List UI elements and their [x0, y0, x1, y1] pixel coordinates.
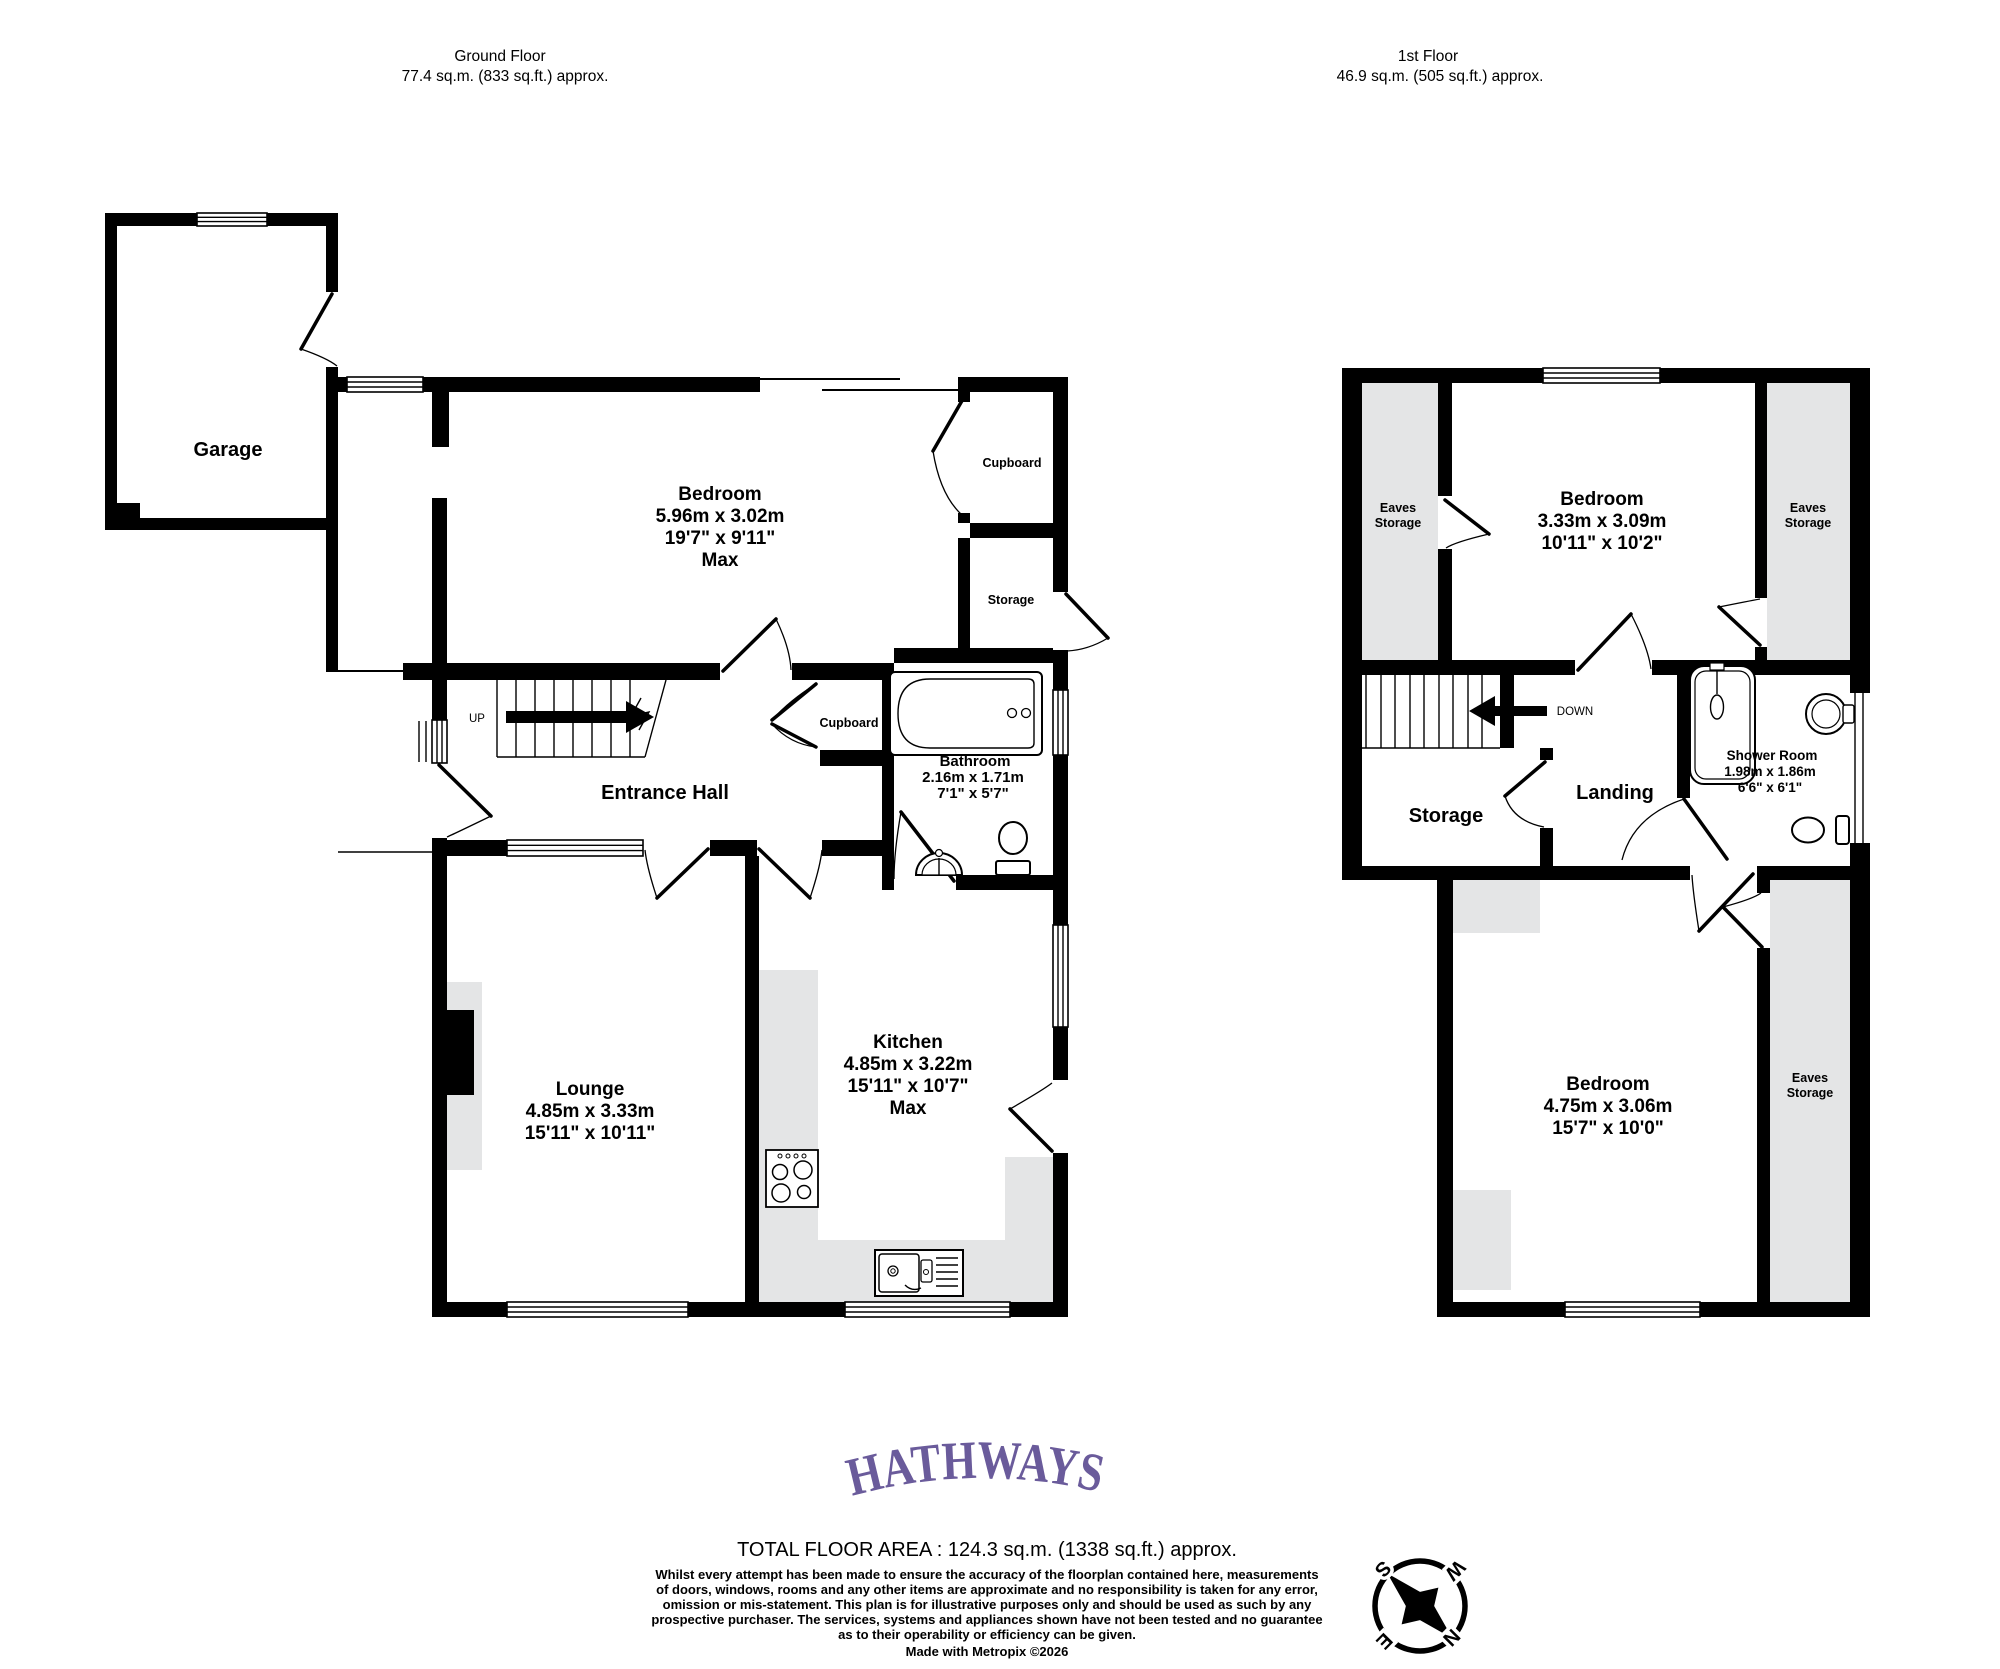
ground-floor-title: Ground Floor [454, 48, 545, 65]
eaves-top-right-line1: Eaves [1790, 501, 1826, 515]
toilet-fixture [996, 822, 1030, 875]
shower-room-dim-m: 1.98m x 1.86m [1724, 764, 1816, 779]
kitchen-side-window [1053, 925, 1068, 1027]
ff-bedroom-bottom-dim-ft: 15'7" x 10'0" [1552, 1118, 1664, 1139]
garage-window [197, 213, 267, 226]
eaves-left-line1: Eaves [1380, 501, 1416, 515]
shower-room-name: Shower Room [1727, 748, 1818, 763]
gf-bedroom-dim-ft: 19'7" x 9'11" [665, 528, 776, 549]
hall-lounge-window [507, 840, 643, 856]
kitchen-window [845, 1302, 1010, 1317]
bathroom-window [1053, 690, 1068, 755]
ff-stairs: DOWN [1362, 675, 1593, 748]
kitchen-name: Kitchen [873, 1032, 943, 1053]
disclaimer-line-3: omission or mis-statement. This plan is … [663, 1597, 1312, 1612]
ground-floor-plan: UP [105, 213, 1108, 1317]
ff-bedroom-bottom-dim-m: 4.75m x 3.06m [1544, 1096, 1673, 1117]
eaves-bottom-right-line2: Storage [1787, 1086, 1834, 1100]
total-floor-area: TOTAL FLOOR AREA : 124.3 sq.m. (1338 sq.… [737, 1539, 1237, 1561]
compass-west: W [1440, 1555, 1469, 1584]
lounge-dim-m: 4.85m x 3.33m [526, 1101, 655, 1122]
ff-bedroom-bottom-name: Bedroom [1566, 1074, 1649, 1095]
lounge-name: Lounge [556, 1079, 625, 1100]
ff-storage-door [1505, 762, 1545, 827]
shower-toilet-fixture [1792, 816, 1849, 844]
shower-sink-fixture [1806, 694, 1854, 734]
gf-labels: Garage Bedroom 5.96m x 3.02m 19'7" x 9'1… [194, 439, 1042, 1144]
first-floor-title: 1st Floor [1398, 48, 1458, 65]
gf-bedroom-window [347, 377, 423, 392]
gf-bedroom-max: Max [702, 550, 739, 571]
bathroom-sink-fixture [916, 850, 962, 876]
floorplan-page: Ground Floor 77.4 sq.m. (833 sq.ft.) app… [0, 0, 2000, 1669]
lounge-door [645, 849, 708, 898]
garage-side-door [301, 294, 337, 366]
gf-bedroom-dim-m: 5.96m x 3.02m [656, 506, 785, 527]
landing-label: Landing [1576, 782, 1654, 804]
compass-east: E [1371, 1628, 1396, 1653]
lounge-window [507, 1302, 688, 1317]
kitchen-door [759, 849, 822, 898]
right-storage-label: Storage [988, 593, 1035, 607]
gf-bedroom-door [723, 619, 791, 671]
ground-floor-area: 77.4 sq.m. (833 sq.ft.) approx. [402, 68, 609, 85]
first-floor-plan: DOWN Eaves Storage [1342, 368, 1870, 1317]
gf-stairs: UP [469, 680, 666, 757]
gf-bedroom-name: Bedroom [678, 484, 761, 505]
first-floor-area: 46.9 sq.m. (505 sq.ft.) approx. [1337, 68, 1544, 85]
ff-bedroom-top-door [1578, 614, 1651, 670]
up-label: UP [469, 713, 485, 725]
kitchen-dim-m: 4.85m x 3.22m [844, 1054, 973, 1075]
bathroom-name: Bathroom [940, 753, 1011, 770]
kitchen-sink-fixture [875, 1250, 963, 1296]
shower-room-door [1622, 799, 1727, 860]
front-door [439, 765, 491, 837]
gf-walls [105, 213, 1068, 1317]
bathtub-fixture [890, 672, 1042, 755]
top-cupboard-door [933, 399, 963, 515]
floorplan-canvas: Ground Floor 77.4 sq.m. (833 sq.ft.) app… [0, 0, 2000, 1669]
hob-fixture [766, 1150, 818, 1207]
kitchen-dim-ft: 15'11" x 10'7" [847, 1076, 968, 1097]
storage-external-door [1066, 594, 1108, 651]
kitchen-back-door [1010, 1083, 1052, 1151]
top-cupboard-label: Cupboard [982, 456, 1041, 470]
ff-bedroom-top-dim-ft: 10'11" x 10'2" [1541, 533, 1662, 554]
disclaimer-line-2: of doors, windows, rooms and any other i… [656, 1582, 1318, 1597]
ff-bedroom-top-name: Bedroom [1560, 489, 1643, 510]
entrance-hall-label: Entrance Hall [601, 782, 729, 804]
eaves-top-right-door [1719, 599, 1760, 645]
lounge-dim-ft: 15'11" x 10'11" [525, 1123, 656, 1144]
ff-bedroom-bottom-window [1565, 1302, 1700, 1317]
bathroom-dim-m: 2.16m x 1.71m [922, 769, 1024, 786]
up-arrow-icon [506, 701, 654, 733]
shower-room-dim-ft: 6'6" x 6'1" [1738, 780, 1802, 795]
garage-label: Garage [194, 439, 263, 461]
porch-window [419, 720, 447, 763]
ff-bedroom-top-dim-m: 3.33m x 3.09m [1538, 511, 1667, 532]
hall-cupboard-label: Cupboard [819, 716, 878, 730]
disclaimer: Whilst every attempt has been made to en… [651, 1567, 1322, 1659]
ff-bedroom-bottom-door [1692, 874, 1753, 931]
floor-headers: Ground Floor 77.4 sq.m. (833 sq.ft.) app… [402, 48, 1544, 85]
eaves-left-line2: Storage [1375, 516, 1422, 530]
footer: HATHWAYS TOTAL FLOOR AREA : 124.3 sq.m. … [651, 1430, 1501, 1669]
eaves-bottom-right-line1: Eaves [1792, 1071, 1828, 1085]
eaves-top-right-line2: Storage [1785, 516, 1832, 530]
hall-cupboard-doors [772, 684, 816, 747]
made-with-label: Made with Metropix ©2026 [906, 1644, 1069, 1659]
brand-logo: HATHWAYS [841, 1430, 1110, 1508]
kitchen-max: Max [890, 1098, 927, 1119]
ff-storage-label: Storage [1409, 805, 1483, 827]
ff-bedroom-top-window [1543, 368, 1660, 383]
bathroom-dim-ft: 7'1" x 5'7" [937, 785, 1008, 802]
disclaimer-line-5: as to their operability or efficiency ca… [838, 1627, 1136, 1642]
disclaimer-line-1: Whilst every attempt has been made to en… [655, 1567, 1318, 1582]
eaves-left-door [1445, 500, 1489, 548]
down-label: DOWN [1557, 706, 1593, 718]
compass-rose: N S E W [1335, 1519, 1501, 1669]
disclaimer-line-4: prospective purchaser. The services, sys… [651, 1612, 1322, 1627]
